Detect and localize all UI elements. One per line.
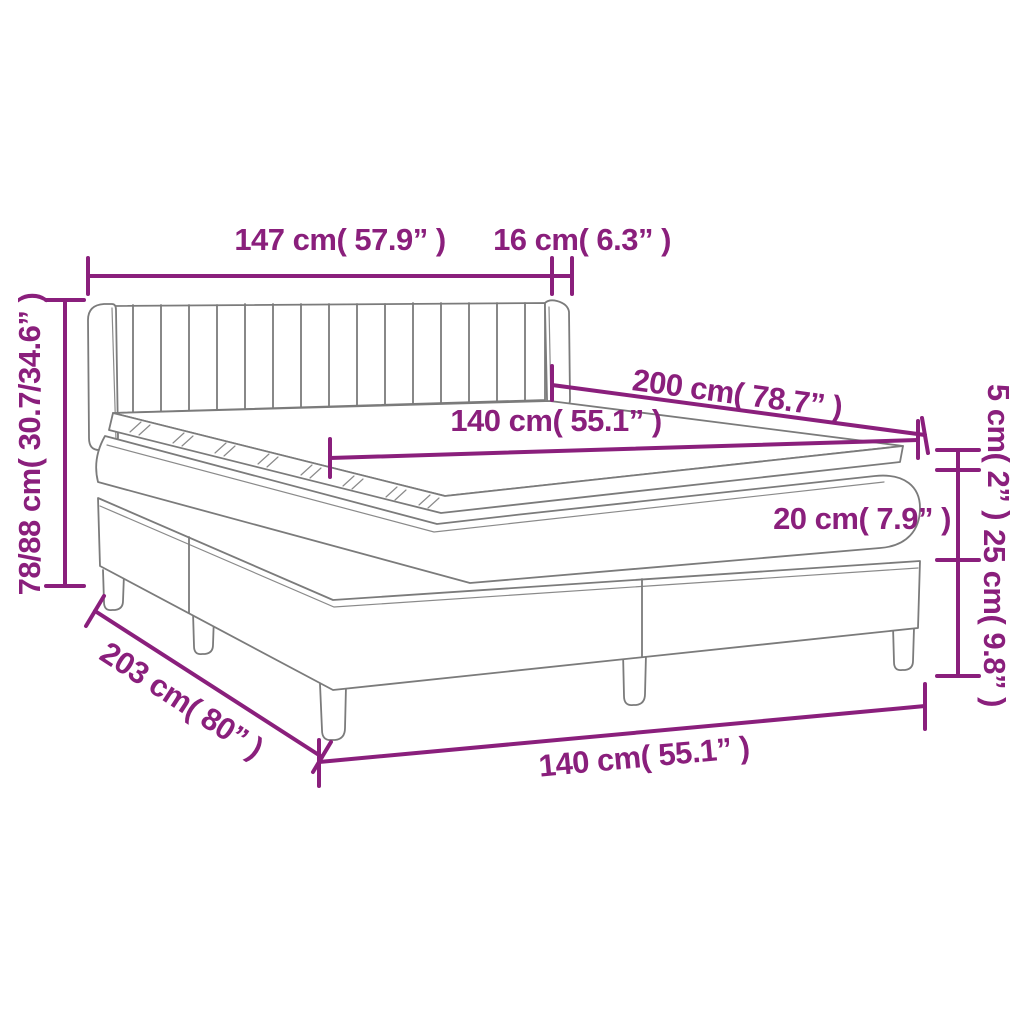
topper-thickness-label: 5 cm( 2” ) (981, 384, 1016, 520)
leg (623, 652, 646, 705)
leg (320, 684, 346, 740)
diagram-canvas: 147 cm( 57.9” ) 16 cm( 6.3” ) 78/88 cm( … (0, 0, 1024, 1024)
leg (893, 626, 914, 670)
dimension-headboard-height-line (46, 300, 84, 586)
base-height-label: 25 cm( 9.8” ) (977, 529, 1012, 707)
headboard-depth-label: 16 cm( 6.3” ) (493, 222, 671, 257)
total-length-label: 203 cm( 80” ) (94, 635, 269, 766)
dimension-headboard-width-line (88, 258, 552, 294)
bed-dimension-diagram: 147 cm( 57.9” ) 16 cm( 6.3” ) 78/88 cm( … (0, 0, 1024, 1024)
mattress-thickness-label: 20 cm( 7.9” ) (773, 501, 951, 536)
dimension-height-stack-line (937, 450, 979, 676)
headboard-width-label: 147 cm( 57.9” ) (234, 222, 445, 257)
headboard-height-label: 78/88 cm( 30.7/34.6” ) (12, 293, 47, 596)
dimension-headboard-depth-line (552, 258, 572, 294)
headboard-right-wing (545, 300, 570, 410)
mattress-width-label: 140 cm( 55.1” ) (450, 403, 661, 438)
